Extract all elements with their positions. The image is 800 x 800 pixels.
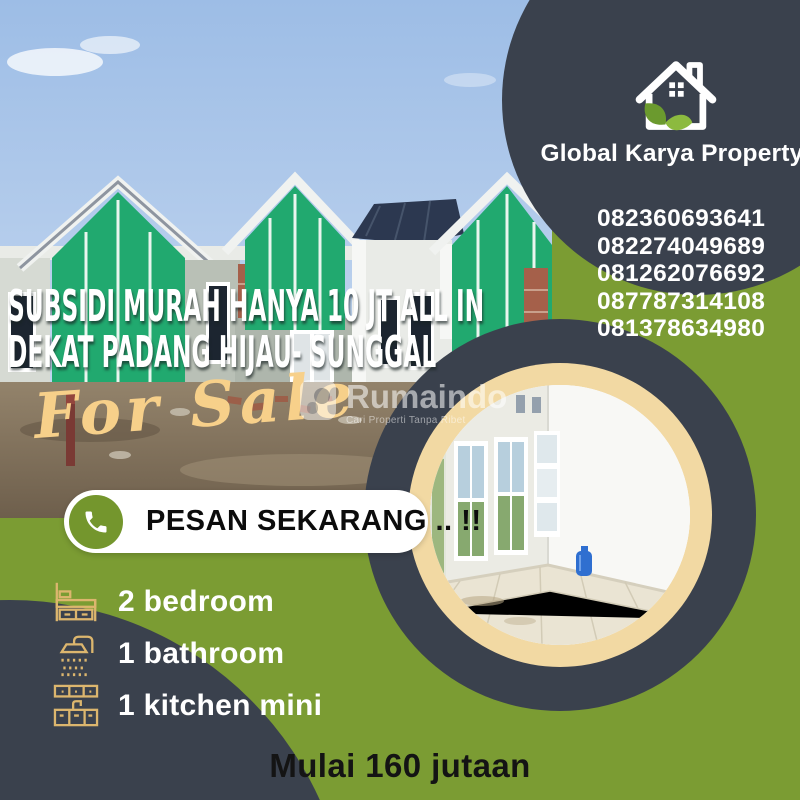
phone-number-list: 082360693641 082274049689 081262076692 0… <box>597 205 765 343</box>
phone-number: 081262076692 <box>597 260 765 288</box>
watermark-logo-icon <box>300 380 336 422</box>
phone-icon <box>82 508 110 536</box>
feature-bedroom: 2 bedroom <box>50 577 274 627</box>
watermark-name: Rumaindo <box>346 380 507 413</box>
cta-phone-circle <box>69 495 123 549</box>
feature-label: 2 bedroom <box>118 585 274 619</box>
watermark: Rumaindo Cari Properti Tanpa Ribet <box>300 380 507 426</box>
watermark-text: Rumaindo Cari Properti Tanpa Ribet <box>346 380 507 426</box>
feature-label: 1 kitchen mini <box>118 689 322 723</box>
house-with-leaves-icon <box>628 42 724 138</box>
phone-number: 082360693641 <box>597 205 765 233</box>
feature-kitchen: 1 kitchen mini <box>50 681 322 731</box>
phone-number: 087787314108 <box>597 288 765 316</box>
headline-line-1: SUBSIDI MURAH HANYA 10 JT ALL IN <box>8 284 484 330</box>
phone-number: 081378634980 <box>597 315 765 343</box>
watermark-tagline: Cari Properti Tanpa Ribet <box>346 415 507 426</box>
cta-button[interactable]: PESAN SEKARANG .. !! <box>64 490 428 553</box>
phone-number: 082274049689 <box>597 233 765 261</box>
feature-bathroom: 1 bathroom <box>50 629 284 679</box>
flyer-canvas: Global Karya Property 082360693641 08227… <box>0 0 800 800</box>
bed-icon <box>50 579 102 625</box>
brand-name: Global Karya Property <box>540 140 800 168</box>
kitchen-icon <box>50 684 102 728</box>
price-text: Mulai 160 jutaan <box>0 747 800 785</box>
feature-label: 1 bathroom <box>118 637 284 671</box>
cta-label: PESAN SEKARANG .. !! <box>146 505 481 538</box>
shower-icon <box>50 630 102 678</box>
brand-logo <box>628 42 724 138</box>
